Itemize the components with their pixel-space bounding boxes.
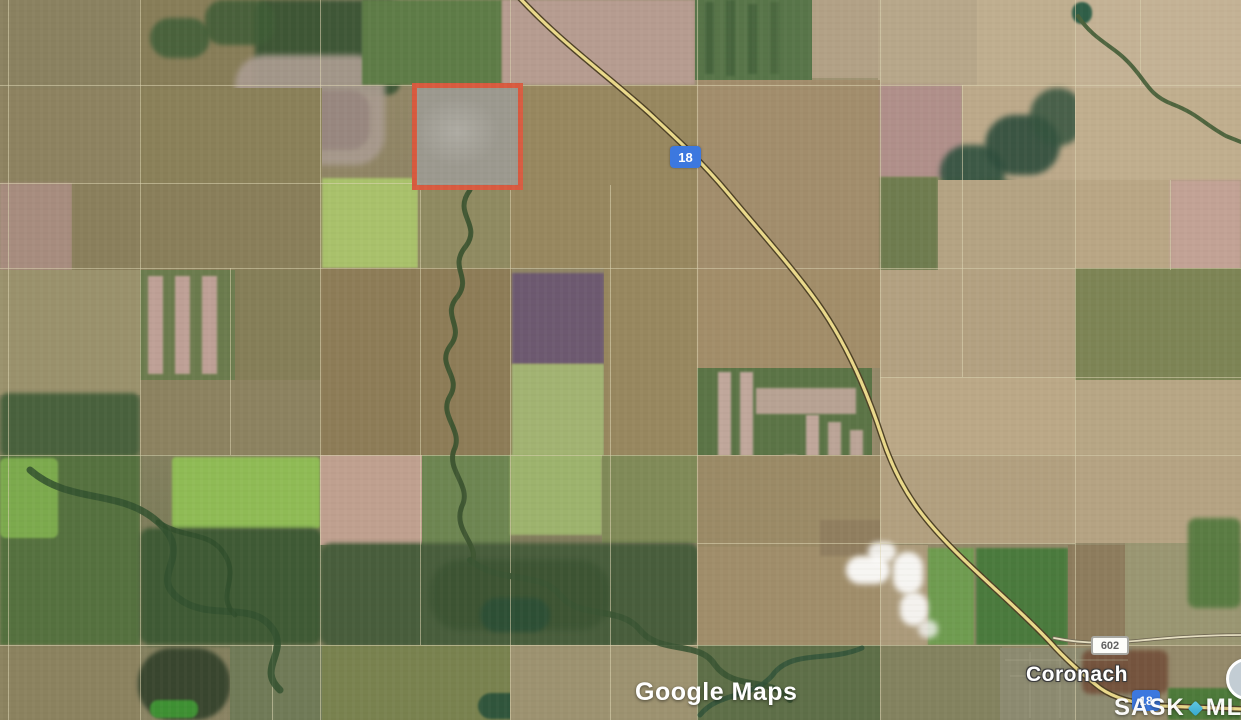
creek-path-center	[446, 190, 474, 562]
road-602-badge: 602	[1091, 636, 1129, 655]
highway-18-path	[516, 0, 1241, 709]
highway-18-shield-top: 18	[670, 146, 701, 168]
satellite-map[interactable]: 18 18 602 Coronach Google Maps SASK MLS	[0, 0, 1241, 720]
sask-mls-watermark-right: MLS	[1206, 694, 1241, 720]
river-path-bottomleft	[30, 470, 280, 690]
creek-path-topright	[1078, 16, 1241, 142]
property-boundary-highlight	[412, 83, 523, 190]
google-maps-watermark: Google Maps	[635, 678, 797, 707]
town-label: Coronach	[1026, 663, 1128, 687]
mls-diamond-icon	[1187, 700, 1203, 716]
linear-features-layer	[0, 0, 1241, 720]
sask-mls-watermark-left: SASK	[1114, 694, 1185, 720]
highway-18-casing	[516, 0, 1241, 709]
sask-mls-watermark: SASK MLS	[1114, 694, 1241, 720]
